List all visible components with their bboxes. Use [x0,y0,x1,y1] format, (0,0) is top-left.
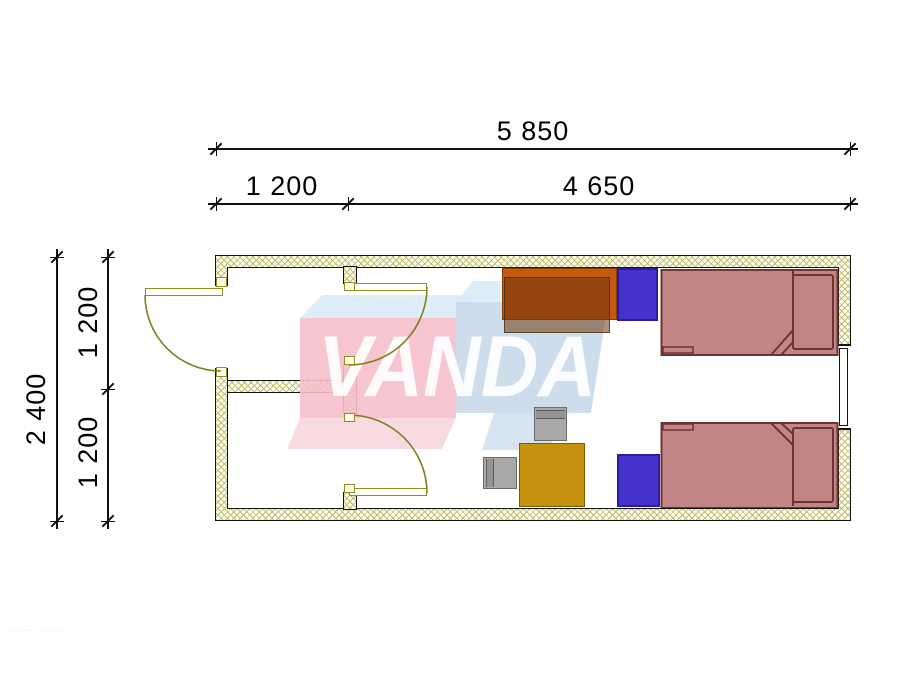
door-jamb [344,484,355,493]
upper-interior-door-leaf [349,283,427,291]
door-jamb [216,367,227,377]
logo-box-pink-top [300,295,478,318]
chair-backrest [486,459,494,487]
dim-stub [101,521,115,522]
logo-box-pink-bottom [287,418,456,449]
dim-label-lower-depth: 1 200 [73,372,103,532]
fine-print: ·· ····· ······· ··· ··· ··· [2,628,64,634]
window-frame [839,348,848,426]
door-jamb [344,413,355,422]
table [519,443,585,507]
lower-interior-door-leaf [349,488,427,496]
dim-stub [850,142,851,156]
dim-label-entry-width: 1 200 [182,171,382,202]
dim-stub [101,257,115,258]
dim-label-room-width: 4 650 [499,171,699,202]
door-jamb [216,277,227,287]
dim-stub [216,142,217,156]
dim-stub [101,389,115,390]
nightstand-top [617,268,658,321]
logo-text: VANDA [318,319,596,415]
dim-label-total-depth: 2 400 [21,329,51,489]
bed-pillow [793,275,833,349]
dim-line [56,249,58,529]
bed-pillow [793,428,833,502]
chair-backrest [536,410,565,419]
exterior-door-arc [145,295,221,371]
dim-stub [850,197,851,211]
chair-left [483,457,517,489]
dim-label-total-width: 5 850 [433,116,633,147]
nightstand-bottom [617,454,660,507]
dim-line [208,203,858,205]
door-jamb [344,282,355,291]
dim-stub [50,521,64,522]
bed-bottom [660,420,840,508]
chair-top [534,407,567,441]
dim-stub [50,257,64,258]
bed-top [660,268,840,356]
floor-plan-drawing: 5 850 1 200 4 650 2 400 1 200 1 200 [0,0,924,700]
dim-line [208,148,858,150]
door-jamb [344,356,355,365]
exterior-door-opening [213,286,229,368]
exterior-door-leaf [145,288,223,296]
desk-chair-overlay [504,277,610,333]
